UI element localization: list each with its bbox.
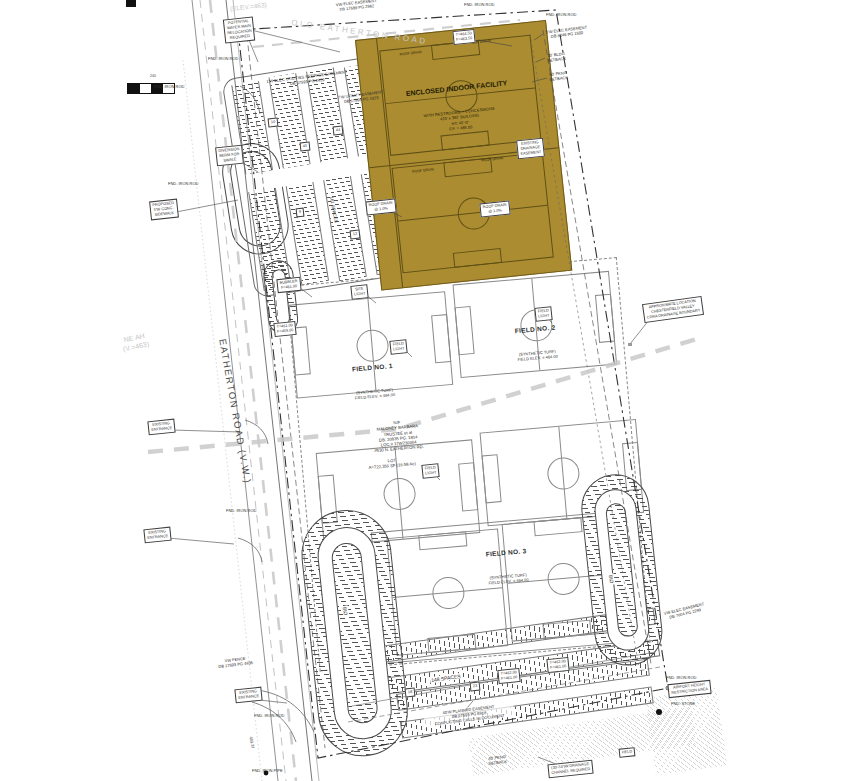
scan-artifact	[126, 0, 136, 7]
note-fnd-iron-rod: FND. IRON ROD	[168, 181, 198, 186]
callout-tf-elevation: T=462.00 F=461.00	[497, 668, 520, 684]
stall-count-tag: 45	[300, 141, 311, 151]
field1-name: FIELD NO. 1	[322, 359, 422, 375]
note-elec-easement-2299: VW ELEC EASEMENT DB 7604 PG 2299	[663, 601, 705, 621]
field3-note: (SYNTHETIC TURF) FIELD ELEV. = 464.00	[448, 569, 568, 590]
note-fnd-iron-rod: FND. IRON ROD	[546, 12, 576, 17]
note-elec-easement-1500: 5'W ELEC EASEMENT DB 8049 PG 1500	[546, 25, 588, 40]
elev-note-left: NE AH (V.=463)	[120, 331, 149, 354]
callout-field-light: FIELD LIGHT	[534, 306, 553, 322]
entrance-arc	[238, 538, 262, 562]
site-plan-sheet: 240 181 SPACES ROOF DRAIN ROOF DRAIN ROO…	[0, 0, 856, 781]
road-eatherton-label: EATHERTON ROAD (V.W.)	[216, 338, 253, 485]
note-fnd-iron-rod: FND. IRON ROD	[226, 508, 256, 513]
note-fnd-iron-rod: FND. IRON ROD	[254, 713, 284, 718]
note-fnd-stone: FND. STONE	[671, 701, 695, 706]
entrance-arc	[258, 690, 314, 732]
elev-note-top: (ELEV.=463)	[230, 1, 267, 13]
building-name: ENCLOSED INDOOR FACILITY	[377, 76, 537, 100]
field3-label: FIELD NO. 3 (SYNTHETIC TURF) FIELD ELEV.…	[444, 526, 570, 608]
callout-sidewalk: PROPOSED 5'W CONC. SIDEWALK	[149, 199, 178, 221]
stall-count-tag: 9	[296, 208, 305, 218]
note-pkng-setback: 50' PKNG SETBACK	[548, 70, 568, 82]
callout-water-main: POTENTIAL WATER MAIN RELOCATION REQUIRED	[223, 16, 256, 43]
owner-block: N/F MALONEY BARBARA TRUSTEE et al DB. 20…	[361, 417, 435, 455]
stall-count-tag: 18	[405, 687, 416, 697]
note-fnd-iron-pipe: FND. IRON PIPE	[252, 768, 283, 773]
note-bldg-setback: 30' BLDG SETBACK	[546, 51, 566, 63]
note-vw-fence: VW FENCE DB 17593 PG 4835	[218, 655, 254, 669]
stall-count-tag: 44	[333, 125, 344, 135]
boundary-tick	[628, 343, 632, 346]
field2-name: FIELD NO. 2	[488, 321, 583, 336]
stall-count-tag: 10	[268, 117, 279, 127]
note-fnd-iron-rod: FND. IRON ROD	[154, 84, 184, 89]
callout-tf-elevation: T=462.00 F=461.00	[546, 657, 569, 673]
callout-existing-entrance: EXISTING ENTRANCE	[143, 527, 171, 544]
field2-note: (SYNTHETIC TURF) FIELD ELEV. = 464.00	[490, 346, 586, 365]
scale-tick-label: 240	[150, 74, 156, 78]
field3-name: FIELD NO. 3	[446, 544, 566, 561]
callout-existing-entrance: EXISTING ENTRANCE	[147, 419, 175, 436]
callout-existing-entrance: EXISTING ENTRANCE	[234, 687, 262, 704]
stall-count-tag: 23	[470, 681, 481, 691]
field1-label: FIELD NO. 1 (SYNTHETIC TURF) FIELD ELEV.…	[321, 342, 427, 422]
note-fnd-iron-rod: FND. IRON ROD	[464, 2, 494, 7]
callout-field-light: FIELD LIGHT	[389, 339, 408, 355]
callout-bubbler: BUBBLER F=461.00	[276, 277, 301, 293]
callout-diversion-berm: DIVERSION BERM FOR SWALE	[215, 145, 244, 166]
callout-tf-elevation: T=464.50 F=463.50	[452, 29, 475, 45]
stall-count-tag: 12	[350, 229, 361, 239]
callout-tf-elevation: T=461.00 F=459.00	[273, 321, 296, 337]
callout-chesterfield-boundary: APPROXIMATE LOCATION CHESTERFIELD VALLEY…	[642, 296, 704, 323]
callout-field-light: FIELD LIGHT	[421, 463, 440, 479]
entrance-arc	[245, 420, 268, 444]
callout-site-light: SITE LIGHT	[350, 284, 369, 300]
field1-note: (SYNTHETIC TURF) FIELD ELEV. = 464.00	[324, 384, 425, 403]
note-fnd-iron-rod: FND. IRON ROD	[666, 675, 696, 680]
callout-drainage-easement: EXISTING DRAINAGE EASEMENT	[516, 138, 545, 159]
callout-held: HELD	[619, 747, 636, 758]
note-elec-easement-top: VW ELEC EASEMENT DB 17589 PG 2962	[336, 0, 378, 12]
building-details: WITH RESTROOMS + CONCESSIONS 420' x 392'…	[379, 101, 540, 139]
note-fnd-iron-rod: FND. IRON ROD	[208, 56, 238, 61]
entrance-arc	[252, 702, 296, 742]
boundary-dimension: 453.37	[249, 736, 256, 749]
